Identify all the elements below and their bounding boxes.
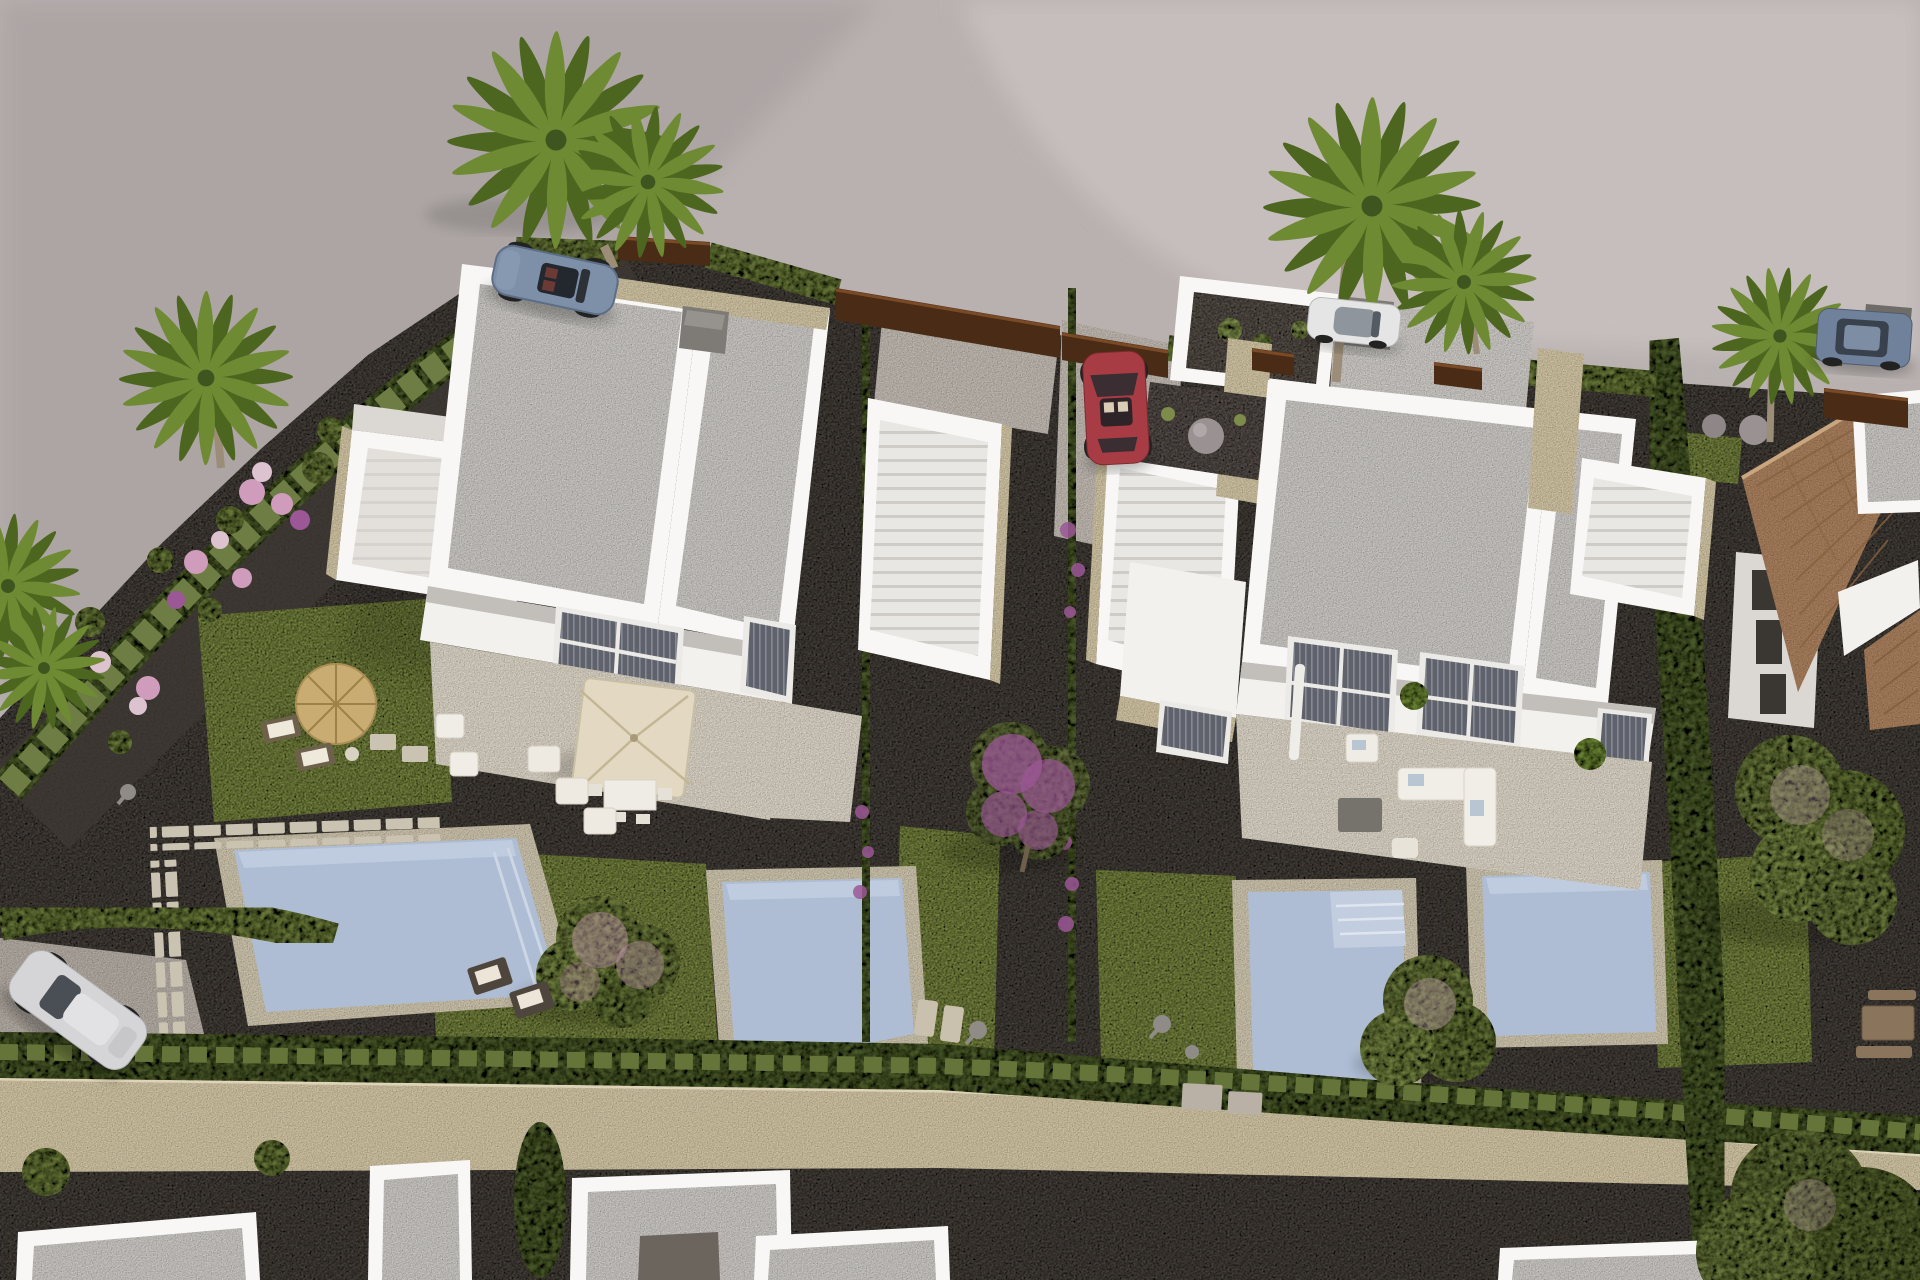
roadside-bush xyxy=(22,1148,70,1196)
roadside-bush xyxy=(254,1140,290,1176)
bush xyxy=(147,547,173,573)
scene-canvas xyxy=(0,0,1920,1280)
armchair xyxy=(584,808,616,834)
utility-pad xyxy=(1181,1083,1222,1111)
bush xyxy=(216,506,244,534)
stairs-left-villa xyxy=(858,398,1012,684)
blossom xyxy=(1770,765,1830,825)
bush xyxy=(302,452,334,484)
blossom xyxy=(1784,1179,1836,1231)
flower-purple xyxy=(290,510,310,530)
potted-plant xyxy=(1400,682,1428,710)
flower-pink xyxy=(136,676,160,700)
bench xyxy=(1868,990,1916,1000)
boulder xyxy=(1188,418,1224,454)
flower-purple xyxy=(167,591,185,609)
dining-table xyxy=(604,780,656,810)
windshield xyxy=(1090,373,1139,397)
blossom xyxy=(560,962,600,1002)
window-right-unit xyxy=(1416,652,1524,750)
armchair xyxy=(450,752,478,776)
red-compact xyxy=(1079,350,1153,473)
roof-panel-a xyxy=(448,284,682,604)
flower-pink xyxy=(232,568,252,588)
suv xyxy=(1810,307,1918,377)
cypress-column xyxy=(514,1122,566,1278)
flower-pink xyxy=(271,493,293,515)
cushion-blue xyxy=(1352,740,1366,750)
bench xyxy=(1856,1046,1912,1058)
pool-water xyxy=(1482,872,1656,1036)
paver xyxy=(402,746,428,762)
chair xyxy=(636,814,650,824)
window-right-unit xyxy=(740,616,796,704)
utility-pad xyxy=(1227,1091,1262,1115)
flower-white xyxy=(129,697,147,715)
wood-table xyxy=(1862,1006,1914,1040)
armchair xyxy=(528,746,560,772)
canopy xyxy=(1807,855,1897,945)
annex-face xyxy=(1120,562,1246,718)
roof-panel-c xyxy=(1260,400,1536,678)
side-table xyxy=(345,747,359,761)
seat xyxy=(1118,401,1129,412)
aerial-render-view xyxy=(0,0,1920,1280)
bush xyxy=(198,598,222,622)
flower-pink xyxy=(239,479,265,505)
bush xyxy=(317,417,343,443)
glasshouse xyxy=(1333,306,1378,338)
blossom xyxy=(616,941,664,989)
cushion-blue xyxy=(1470,800,1484,816)
flat-roof xyxy=(382,1174,460,1280)
lamp-head xyxy=(1185,1045,1199,1059)
bloom xyxy=(1071,563,1085,577)
parasol-ribs xyxy=(296,664,376,744)
cushion-blue xyxy=(1408,774,1424,786)
boulder xyxy=(1702,414,1726,438)
courtyard xyxy=(638,1232,720,1280)
bloom xyxy=(862,846,874,858)
purple-bloom xyxy=(1018,810,1058,850)
parasol-hub xyxy=(630,734,638,742)
bloom xyxy=(1064,606,1076,618)
bloom xyxy=(1065,877,1079,891)
purple-bloom xyxy=(1021,759,1075,813)
bush xyxy=(108,730,132,754)
bloom xyxy=(1060,522,1076,538)
dark-window xyxy=(1760,674,1786,714)
blossom xyxy=(1822,809,1874,861)
boulder-highlight xyxy=(1193,423,1207,437)
flower-white xyxy=(252,462,272,482)
flower-pink xyxy=(184,550,208,574)
grass-tuft xyxy=(1161,407,1175,421)
potted-plant xyxy=(1574,738,1606,770)
roof xyxy=(1843,325,1881,351)
bloom xyxy=(853,885,867,899)
stair-steps xyxy=(870,420,988,656)
armchair xyxy=(556,778,588,804)
paver xyxy=(370,734,396,750)
rear-window xyxy=(1098,437,1139,453)
blossom xyxy=(1404,978,1456,1030)
bloom xyxy=(855,805,869,819)
chair xyxy=(588,784,602,796)
coffee-table xyxy=(1338,798,1382,832)
roof-terrace-stairs xyxy=(1570,458,1716,620)
terrace-right xyxy=(770,702,862,822)
window-blinds xyxy=(746,622,790,696)
bloom xyxy=(1058,916,1074,932)
flower-white xyxy=(211,531,229,549)
chair xyxy=(658,788,672,800)
neighbor-building xyxy=(368,1160,472,1280)
rooftop-ac-unit xyxy=(679,306,729,354)
armchair xyxy=(436,714,464,738)
boulder xyxy=(1739,415,1769,445)
pouf xyxy=(1392,838,1418,858)
seat xyxy=(1104,402,1115,413)
dark-window xyxy=(1756,620,1782,664)
grass-tuft xyxy=(1234,414,1246,426)
